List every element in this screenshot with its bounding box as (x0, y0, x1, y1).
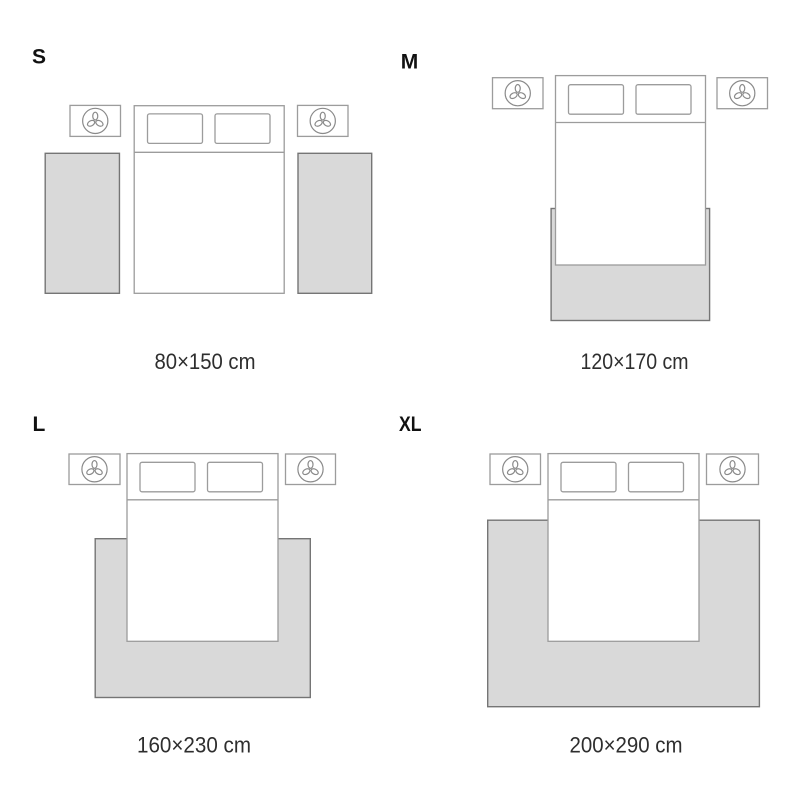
svg-text:S: S (32, 46, 46, 69)
svg-text:160×230 cm: 160×230 cm (137, 733, 251, 758)
svg-text:M: M (401, 51, 419, 74)
svg-text:120×170 cm: 120×170 cm (581, 349, 689, 374)
svg-text:200×290 cm: 200×290 cm (570, 733, 683, 758)
svg-text:XL: XL (399, 413, 422, 436)
svg-text:80×150 cm: 80×150 cm (155, 349, 256, 374)
svg-text:L: L (33, 413, 46, 436)
